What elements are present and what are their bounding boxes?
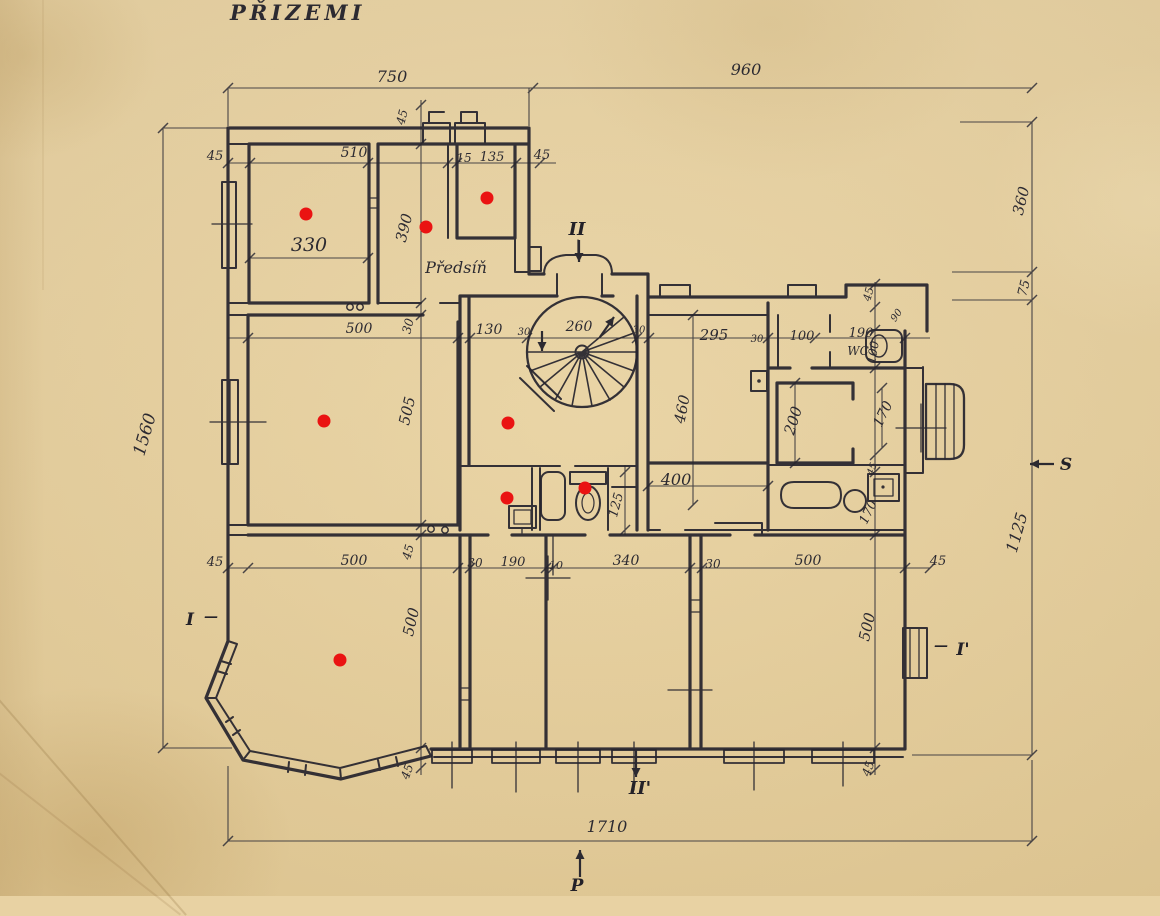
- wall-vent-hole: [347, 304, 353, 310]
- scanned-floorplan: { "title": "PŘIZEMI", "colors": { "paper…: [0, 0, 1160, 896]
- kitchen-counter: [781, 482, 841, 508]
- room-marker-dot: [481, 192, 494, 205]
- dim-label: 45: [860, 286, 876, 304]
- room-marker-dot: [420, 221, 433, 234]
- wall-vent-hole: [357, 304, 363, 310]
- dim-label: 30: [633, 325, 646, 336]
- dim-label: 1710: [587, 817, 628, 836]
- dim-label: 190: [501, 555, 526, 570]
- dim-label: 170: [870, 399, 896, 430]
- dim-label: 295: [699, 326, 729, 344]
- dim-label: 500: [795, 553, 822, 569]
- room-marker-dot: [501, 492, 514, 505]
- room-marker-dot: [502, 417, 515, 430]
- dim-label: 45: [929, 554, 947, 569]
- dim-label: 135: [480, 150, 505, 165]
- dim-label: 190: [849, 326, 874, 341]
- dim-label: 1125: [1002, 510, 1031, 554]
- room-marker-dot: [318, 415, 331, 428]
- dim-label: 500: [399, 605, 423, 637]
- section-marker: II: [568, 219, 586, 240]
- dim-label: 960: [731, 60, 762, 79]
- dim-label: 45: [393, 108, 411, 127]
- dim-label: 10: [549, 559, 563, 572]
- dim-label: 75: [1015, 278, 1034, 298]
- dim-label: 500: [346, 321, 373, 337]
- dim-label: 340: [613, 553, 640, 569]
- dim-label: 45: [533, 148, 551, 163]
- section-marker: S: [1060, 455, 1072, 475]
- dim-label: 390: [392, 211, 417, 244]
- direction-arrow: [538, 331, 547, 351]
- section-marker: —: [934, 638, 948, 654]
- dim-label: 460: [670, 393, 693, 426]
- dim-label: 30: [518, 327, 531, 338]
- direction-arrow: [576, 850, 585, 877]
- room-marker-dot: [579, 482, 592, 495]
- dim-label: 260: [565, 319, 593, 335]
- room-marker-dot: [300, 208, 313, 221]
- dim-label: 15: [456, 151, 471, 165]
- dim-label: 30: [751, 334, 764, 345]
- section-marker: P: [570, 876, 585, 896]
- direction-arrow: [575, 240, 584, 262]
- wall-vent-hole: [442, 527, 448, 533]
- dim-label: 100: [790, 329, 815, 344]
- dim-label: 45: [206, 149, 224, 164]
- section-marker: —: [204, 609, 218, 625]
- dim-label: 500: [341, 553, 368, 569]
- dim-label: 330: [291, 234, 327, 256]
- room-marker-dot: [334, 654, 347, 667]
- dim-label: 505: [395, 395, 419, 427]
- dim-label: 30: [399, 317, 416, 336]
- wall-outline-main: [206, 128, 927, 779]
- wall-vent-hole: [428, 526, 434, 532]
- dim-label: 170: [857, 498, 881, 527]
- switch-dot: [757, 379, 761, 383]
- dim-label: 45: [206, 555, 224, 570]
- bathtub: [541, 472, 565, 520]
- dim-label: 200: [780, 404, 806, 438]
- dim-label: 45: [399, 543, 417, 562]
- dim-label: 1560: [130, 411, 161, 458]
- dim-label: 510: [341, 145, 368, 161]
- section-marker: I': [955, 640, 969, 660]
- dim-label: 400: [660, 470, 692, 489]
- dim-label: 90: [889, 307, 906, 324]
- dim-label: Předsíň: [424, 258, 487, 277]
- dim-label: 125: [606, 491, 627, 519]
- dim-label: 360: [1009, 184, 1034, 217]
- walls-layer: [206, 112, 954, 792]
- toilet-bowl-inner: [582, 493, 594, 513]
- page-title: PŘIZEMI: [229, 0, 365, 25]
- dim-label: 130: [476, 322, 503, 338]
- section-marker: I: [185, 610, 195, 630]
- wall-outline-secondary: [206, 112, 927, 779]
- switch-dot: [881, 485, 884, 488]
- dim-label: 500: [855, 610, 879, 642]
- dim-label: 30: [467, 556, 483, 570]
- dim-label: 30: [705, 557, 721, 571]
- section-marker: II': [628, 778, 651, 799]
- dim-label: 100: [864, 339, 882, 364]
- labels-layer: 7509601560360751125171045510151354545330…: [130, 60, 1034, 836]
- floorplan-svg: PŘIZEMI: [0, 0, 1160, 896]
- direction-arrow: [1030, 460, 1054, 469]
- dim-label: 750: [377, 67, 408, 86]
